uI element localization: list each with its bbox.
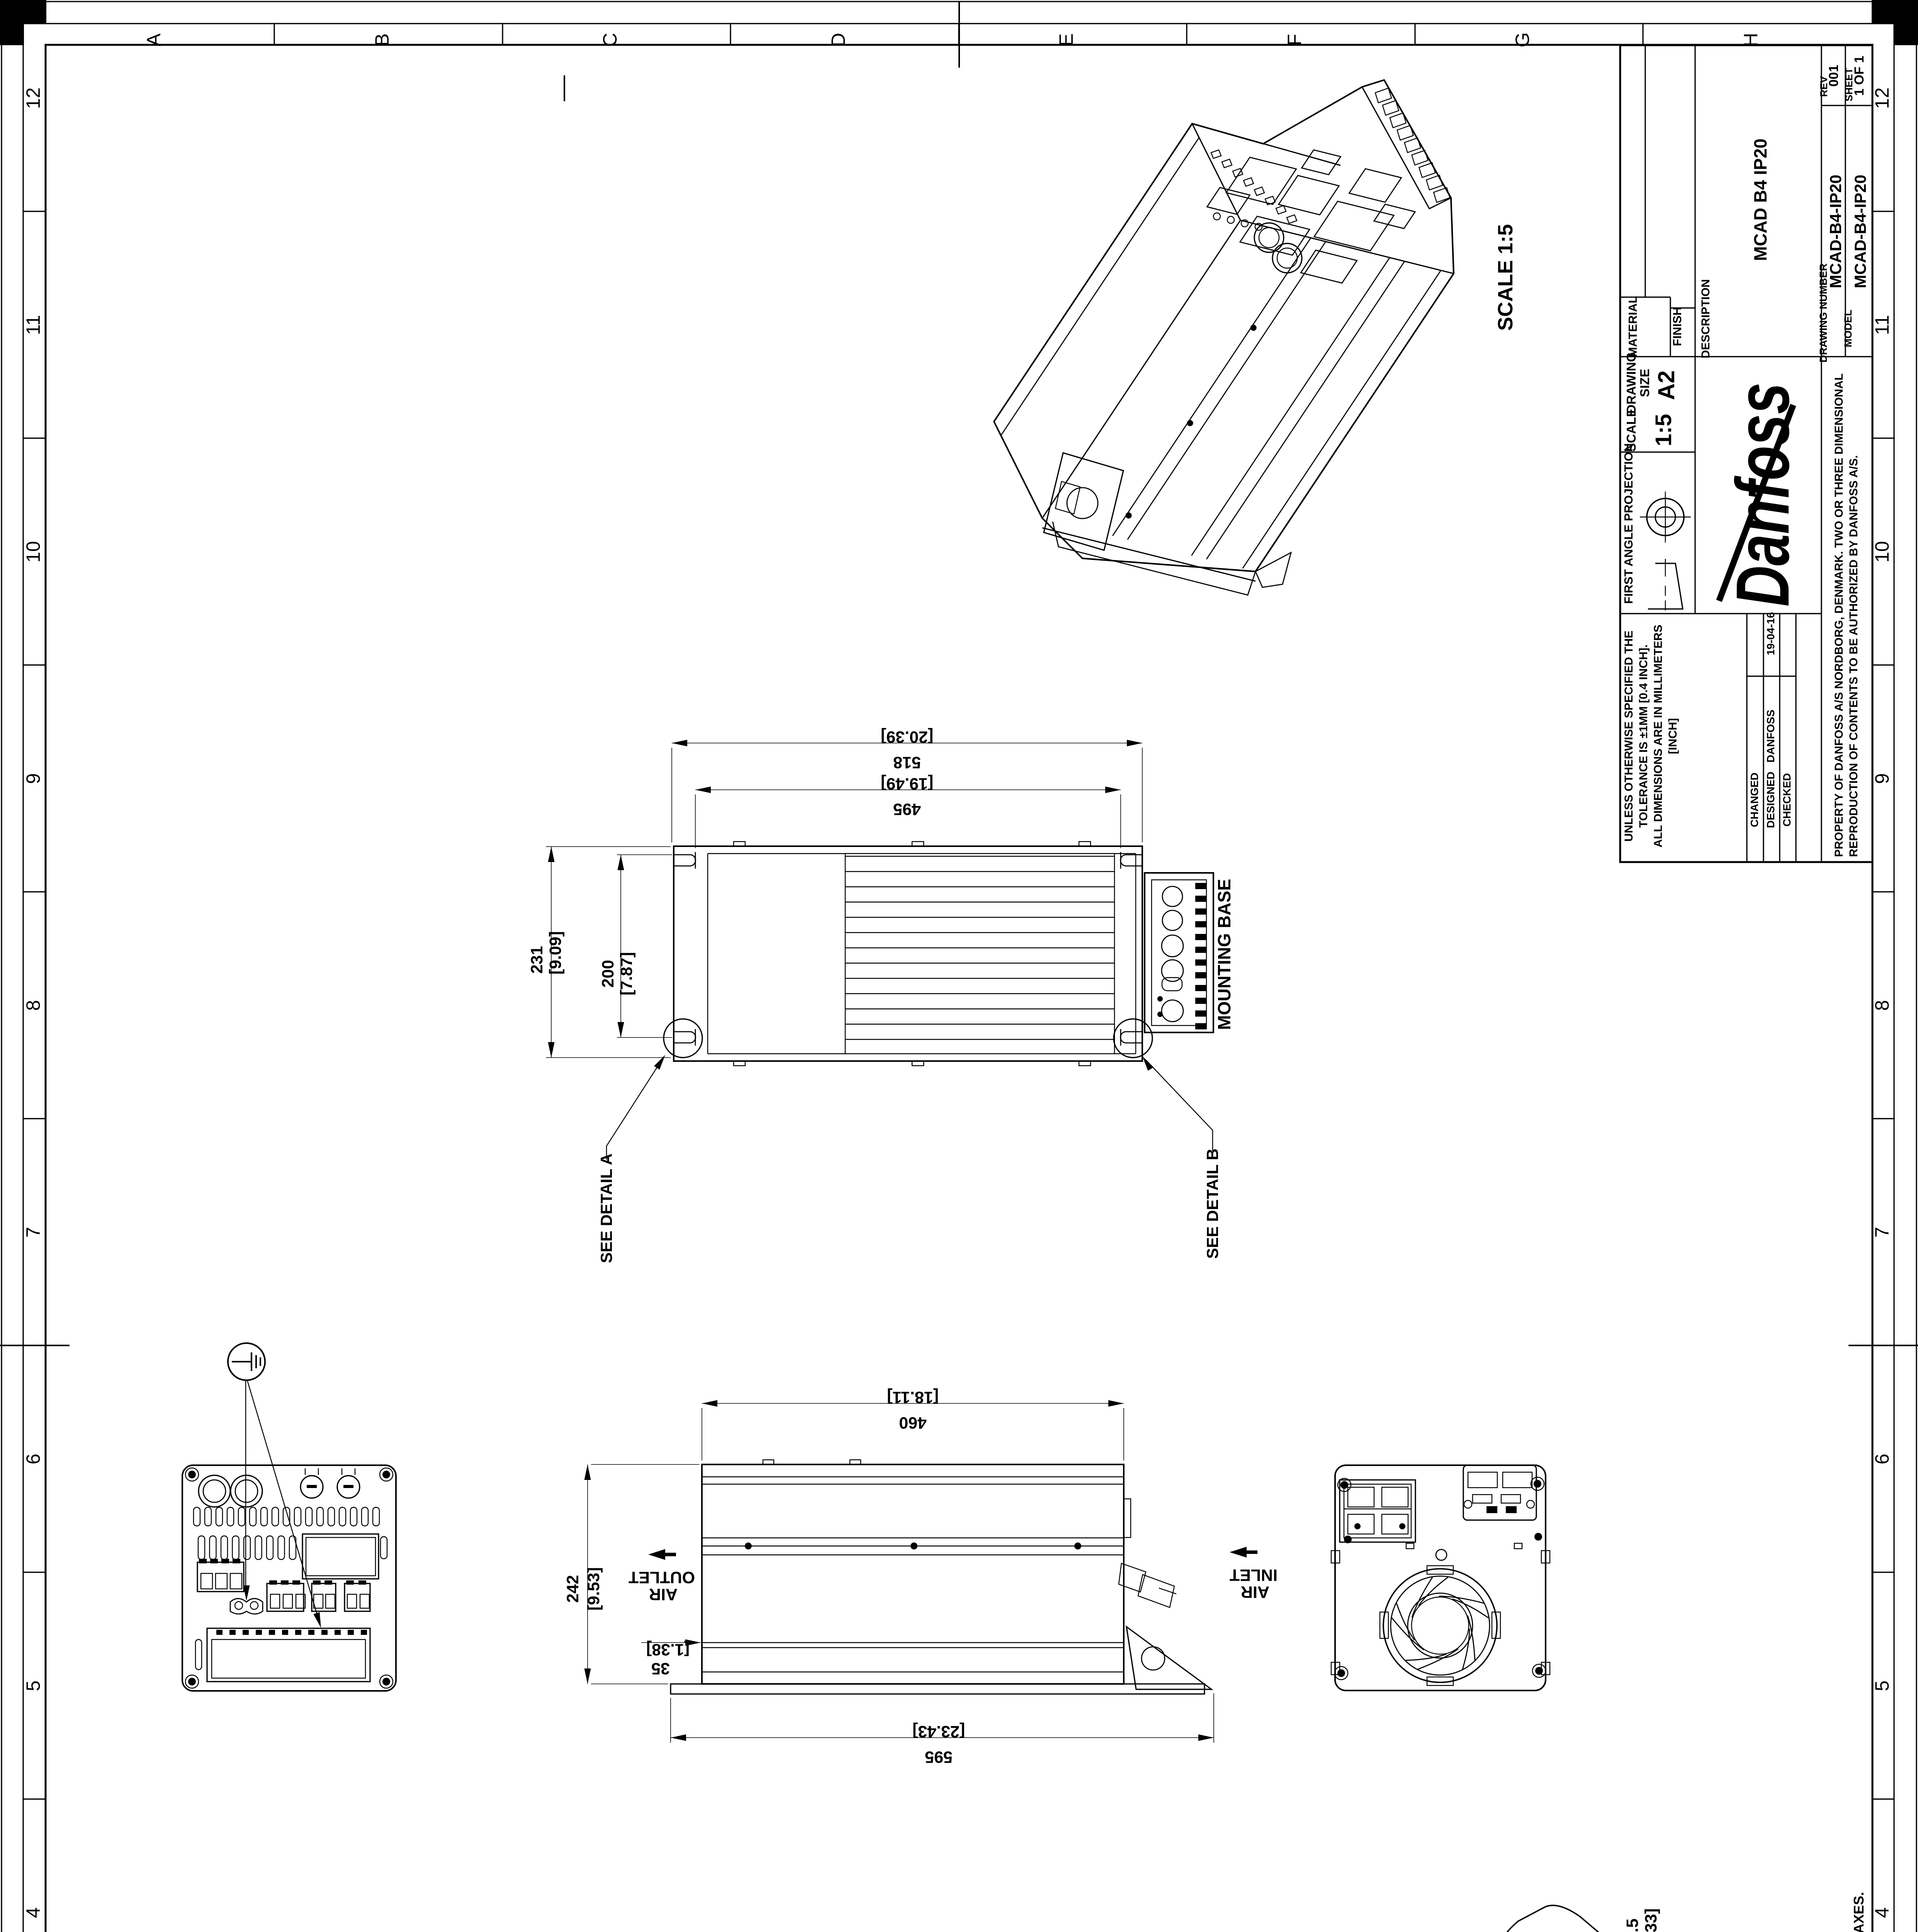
- svg-text:UNLESS OTHERWISE SPECIFIED THE: UNLESS OTHERWISE SPECIFIED THE: [1622, 631, 1635, 842]
- svg-text:A2: A2: [1653, 371, 1679, 400]
- svg-text:F: F: [1284, 34, 1305, 46]
- svg-text:19-04-16: 19-04-16: [1765, 612, 1777, 655]
- svg-text:DESIGNED: DESIGNED: [1765, 772, 1777, 828]
- svg-text:MODEL: MODEL: [1842, 310, 1854, 347]
- svg-text:E: E: [1055, 33, 1077, 46]
- svg-text:[0.33]: [0.33]: [1642, 1908, 1660, 1932]
- svg-text:[INCH]: [INCH]: [1667, 718, 1679, 754]
- svg-text:4: 4: [1871, 1907, 1893, 1918]
- svg-text:MCAD-B4-IP20: MCAD-B4-IP20: [1826, 175, 1845, 288]
- svg-text:[19.49]: [19.49]: [881, 774, 933, 793]
- svg-text:AIR: AIR: [649, 1585, 678, 1604]
- svg-text:5: 5: [22, 1680, 44, 1691]
- svg-text:[9.09]: [9.09]: [546, 931, 565, 975]
- svg-text:8: 8: [1871, 1000, 1893, 1011]
- svg-text:9: 9: [22, 773, 44, 784]
- svg-text:35: 35: [651, 1659, 670, 1678]
- svg-text:C: C: [599, 33, 621, 47]
- svg-text:MCAD B4 IP20: MCAD B4 IP20: [1750, 139, 1770, 261]
- svg-text:7: 7: [1871, 1227, 1893, 1238]
- svg-text:CHANGED: CHANGED: [1748, 772, 1760, 827]
- svg-text:FINISH: FINISH: [1670, 307, 1684, 346]
- svg-text:SEE DETAIL B: SEE DETAIL B: [1203, 1148, 1221, 1259]
- svg-text:OUTLET: OUTLET: [629, 1568, 695, 1587]
- svg-text:MOUNTING BASE: MOUNTING BASE: [1214, 879, 1234, 1030]
- svg-text:FOR REFERENCE ONLY, THE PRODUC: FOR REFERENCE ONLY, THE PRODUCT CONFIGUR…: [1851, 1892, 1867, 1932]
- svg-text:10: 10: [22, 541, 44, 563]
- svg-text:CHECKED: CHECKED: [1781, 773, 1793, 827]
- svg-text:595: 595: [925, 1748, 953, 1766]
- svg-text:PROPERTY OF DANFOSS A/S NORDBO: PROPERTY OF DANFOSS A/S NORDBORG, DENMAR…: [1833, 373, 1845, 857]
- svg-text:AIR: AIR: [1241, 1583, 1269, 1601]
- svg-text:11: 11: [1871, 315, 1893, 335]
- svg-text:A: A: [143, 33, 165, 46]
- svg-text:DESCRIPTION: DESCRIPTION: [1699, 279, 1712, 358]
- svg-text:DRAWING: DRAWING: [1624, 352, 1638, 414]
- svg-text:DANFOSS: DANFOSS: [1765, 710, 1777, 763]
- svg-text:INLET: INLET: [1230, 1566, 1278, 1584]
- svg-text:[20.39]: [20.39]: [881, 728, 933, 746]
- svg-text:231: 231: [528, 946, 546, 974]
- svg-text:4: 4: [22, 1907, 44, 1918]
- svg-text:SIZE: SIZE: [1638, 369, 1652, 397]
- svg-text:518: 518: [893, 753, 921, 772]
- svg-text:8: 8: [22, 1000, 44, 1011]
- svg-text:B: B: [371, 33, 393, 46]
- svg-text:[18.11]: [18.11]: [887, 1388, 939, 1406]
- svg-text:FIRST ANGLE PROJECTION: FIRST ANGLE PROJECTION: [1622, 443, 1635, 604]
- svg-text:11: 11: [22, 315, 44, 335]
- svg-text:7: 7: [22, 1227, 44, 1238]
- svg-text:1 OF 1: 1 OF 1: [1852, 56, 1867, 96]
- svg-text:1:5: 1:5: [1651, 414, 1676, 446]
- svg-text:12: 12: [1871, 87, 1893, 109]
- svg-text:[1.38]: [1.38]: [646, 1640, 690, 1659]
- svg-text:495: 495: [893, 800, 921, 818]
- svg-text:6: 6: [1871, 1454, 1893, 1464]
- svg-text:[7.87]: [7.87]: [617, 952, 636, 995]
- svg-text:REPRODUCTION OF CONTENTS TO BE: REPRODUCTION OF CONTENTS TO BE AUTHORIZE…: [1847, 455, 1860, 857]
- svg-text:12: 12: [22, 87, 44, 109]
- svg-text:200: 200: [599, 960, 617, 988]
- svg-text:8.5: 8.5: [1623, 1918, 1642, 1932]
- svg-text:6: 6: [22, 1454, 44, 1464]
- svg-text:G: G: [1512, 32, 1533, 48]
- svg-text:5: 5: [1871, 1680, 1893, 1691]
- svg-text:MCAD-B4-IP20: MCAD-B4-IP20: [1851, 175, 1869, 288]
- svg-text:[9.53]: [9.53]: [584, 1567, 603, 1611]
- svg-text:SEE DETAIL A: SEE DETAIL A: [597, 1153, 615, 1263]
- svg-text:10: 10: [1871, 541, 1893, 563]
- svg-text:9: 9: [1871, 773, 1893, 784]
- svg-text:[23.43]: [23.43]: [912, 1722, 965, 1741]
- svg-text:460: 460: [899, 1413, 927, 1432]
- svg-text:TOLERANCE IS ±1MM [0.4 INCH].: TOLERANCE IS ±1MM [0.4 INCH].: [1637, 645, 1650, 828]
- svg-text:MATERIAL: MATERIAL: [1626, 296, 1639, 357]
- svg-text:SCALE 1:5: SCALE 1:5: [1494, 224, 1517, 331]
- svg-text:242: 242: [564, 1575, 582, 1603]
- svg-text:001: 001: [1826, 65, 1841, 87]
- svg-text:D: D: [827, 33, 849, 47]
- svg-text:ALL DIMENSIONS ARE IN MILLIMET: ALL DIMENSIONS ARE IN MILLIMETERS: [1652, 625, 1665, 848]
